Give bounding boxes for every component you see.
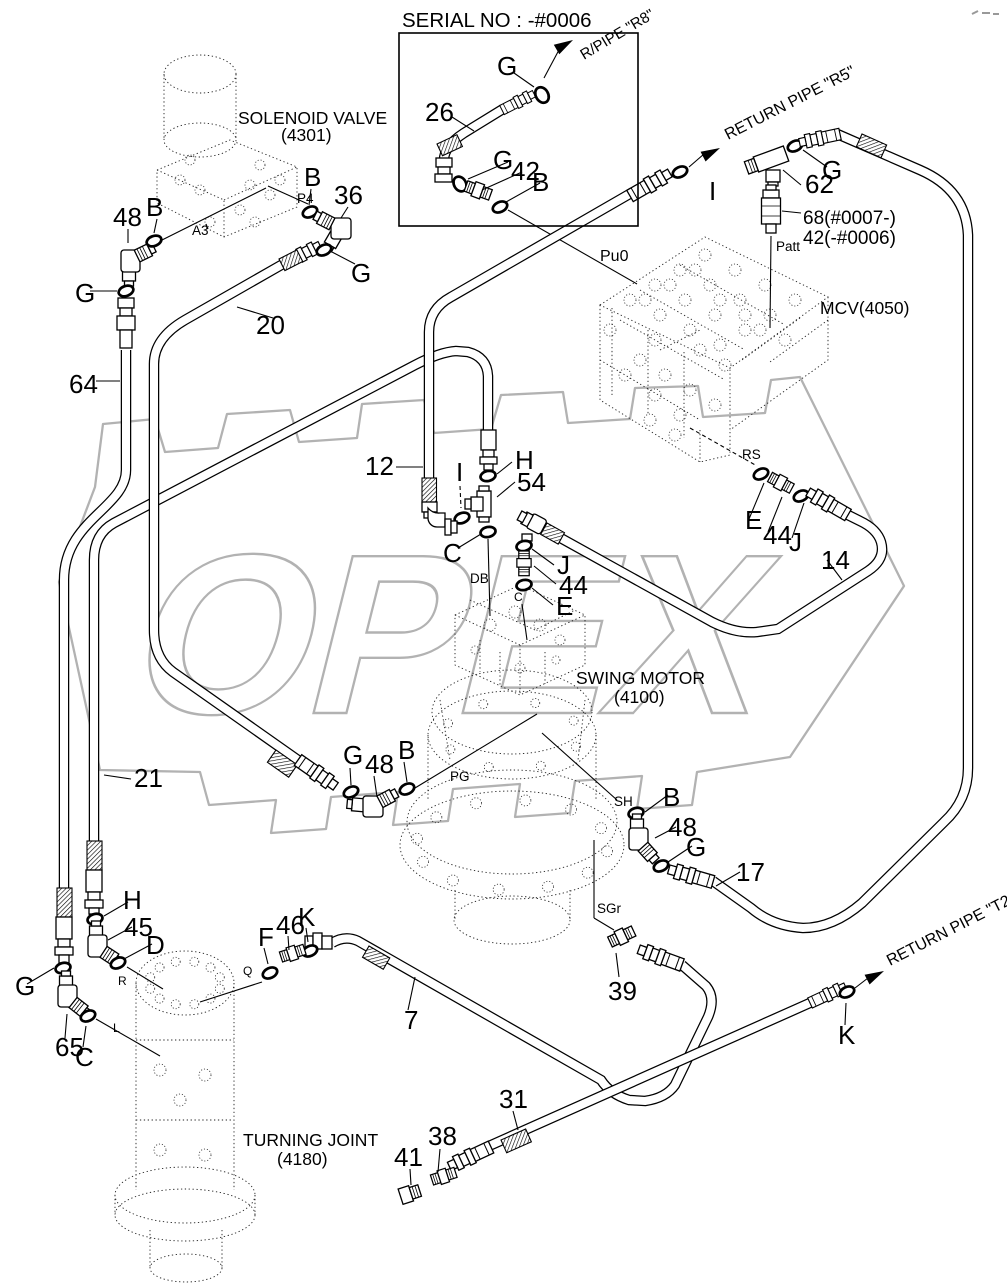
svg-text:B: B [398, 735, 415, 765]
svg-text:G: G [686, 832, 706, 862]
svg-text:G: G [497, 51, 517, 81]
svg-text:64: 64 [69, 369, 98, 399]
svg-text:SGr: SGr [597, 901, 622, 916]
svg-text:D: D [146, 930, 165, 960]
svg-text:38: 38 [428, 1121, 457, 1151]
svg-text:K: K [298, 902, 316, 932]
svg-text:48: 48 [113, 202, 142, 232]
svg-text:MCV(4050): MCV(4050) [820, 298, 909, 318]
svg-text:C: C [75, 1042, 94, 1072]
svg-text:36: 36 [334, 180, 363, 210]
svg-text:L: L [113, 1021, 120, 1035]
svg-text:DB: DB [470, 571, 489, 586]
svg-text:G: G [822, 155, 842, 185]
svg-text:G: G [75, 278, 95, 308]
svg-text:31: 31 [499, 1084, 528, 1114]
svg-text:B: B [304, 162, 321, 192]
svg-text:54: 54 [517, 467, 546, 497]
svg-text:C: C [514, 590, 523, 604]
svg-text:H: H [123, 885, 142, 915]
svg-text:39: 39 [608, 976, 637, 1006]
svg-text:I: I [709, 176, 716, 206]
svg-text:TURNING JOINT: TURNING JOINT [243, 1130, 378, 1150]
svg-text:Patt: Patt [776, 239, 800, 254]
svg-text:48: 48 [365, 749, 394, 779]
svg-text:(4180): (4180) [277, 1149, 328, 1169]
svg-text:68(#0007-): 68(#0007-) [803, 208, 896, 229]
svg-text:K: K [838, 1020, 856, 1050]
svg-text:C: C [443, 538, 462, 568]
svg-text:J: J [789, 527, 802, 557]
svg-text:(4301): (4301) [281, 125, 332, 145]
svg-text:B: B [146, 192, 163, 222]
svg-text:G: G [351, 258, 371, 288]
svg-text:Q: Q [243, 964, 252, 978]
svg-text:E: E [556, 591, 573, 621]
svg-text:F: F [258, 922, 274, 952]
svg-text:26: 26 [425, 97, 454, 127]
svg-text:E: E [745, 505, 762, 535]
svg-text:Pu0: Pu0 [600, 248, 629, 265]
svg-text:R: R [118, 974, 127, 988]
svg-text:P4: P4 [297, 191, 314, 206]
svg-text:17: 17 [736, 857, 765, 887]
svg-text:12: 12 [365, 451, 394, 481]
svg-text:RS: RS [742, 447, 761, 462]
svg-text:(4100): (4100) [614, 687, 665, 707]
svg-text:B: B [532, 167, 549, 197]
svg-text:21: 21 [134, 763, 163, 793]
svg-text:42(-#0006): 42(-#0006) [803, 228, 896, 249]
svg-text:I: I [456, 457, 463, 487]
svg-text:SH: SH [614, 794, 633, 809]
svg-text:PG: PG [450, 769, 470, 784]
svg-text:SERIAL NO : -#0006: SERIAL NO : -#0006 [402, 9, 592, 32]
svg-text:G: G [343, 740, 363, 770]
svg-text:G: G [15, 971, 35, 1001]
svg-text:44: 44 [763, 520, 792, 550]
svg-text:SWING MOTOR: SWING MOTOR [576, 668, 705, 688]
svg-text:41: 41 [394, 1142, 423, 1172]
svg-text:7: 7 [404, 1005, 418, 1035]
